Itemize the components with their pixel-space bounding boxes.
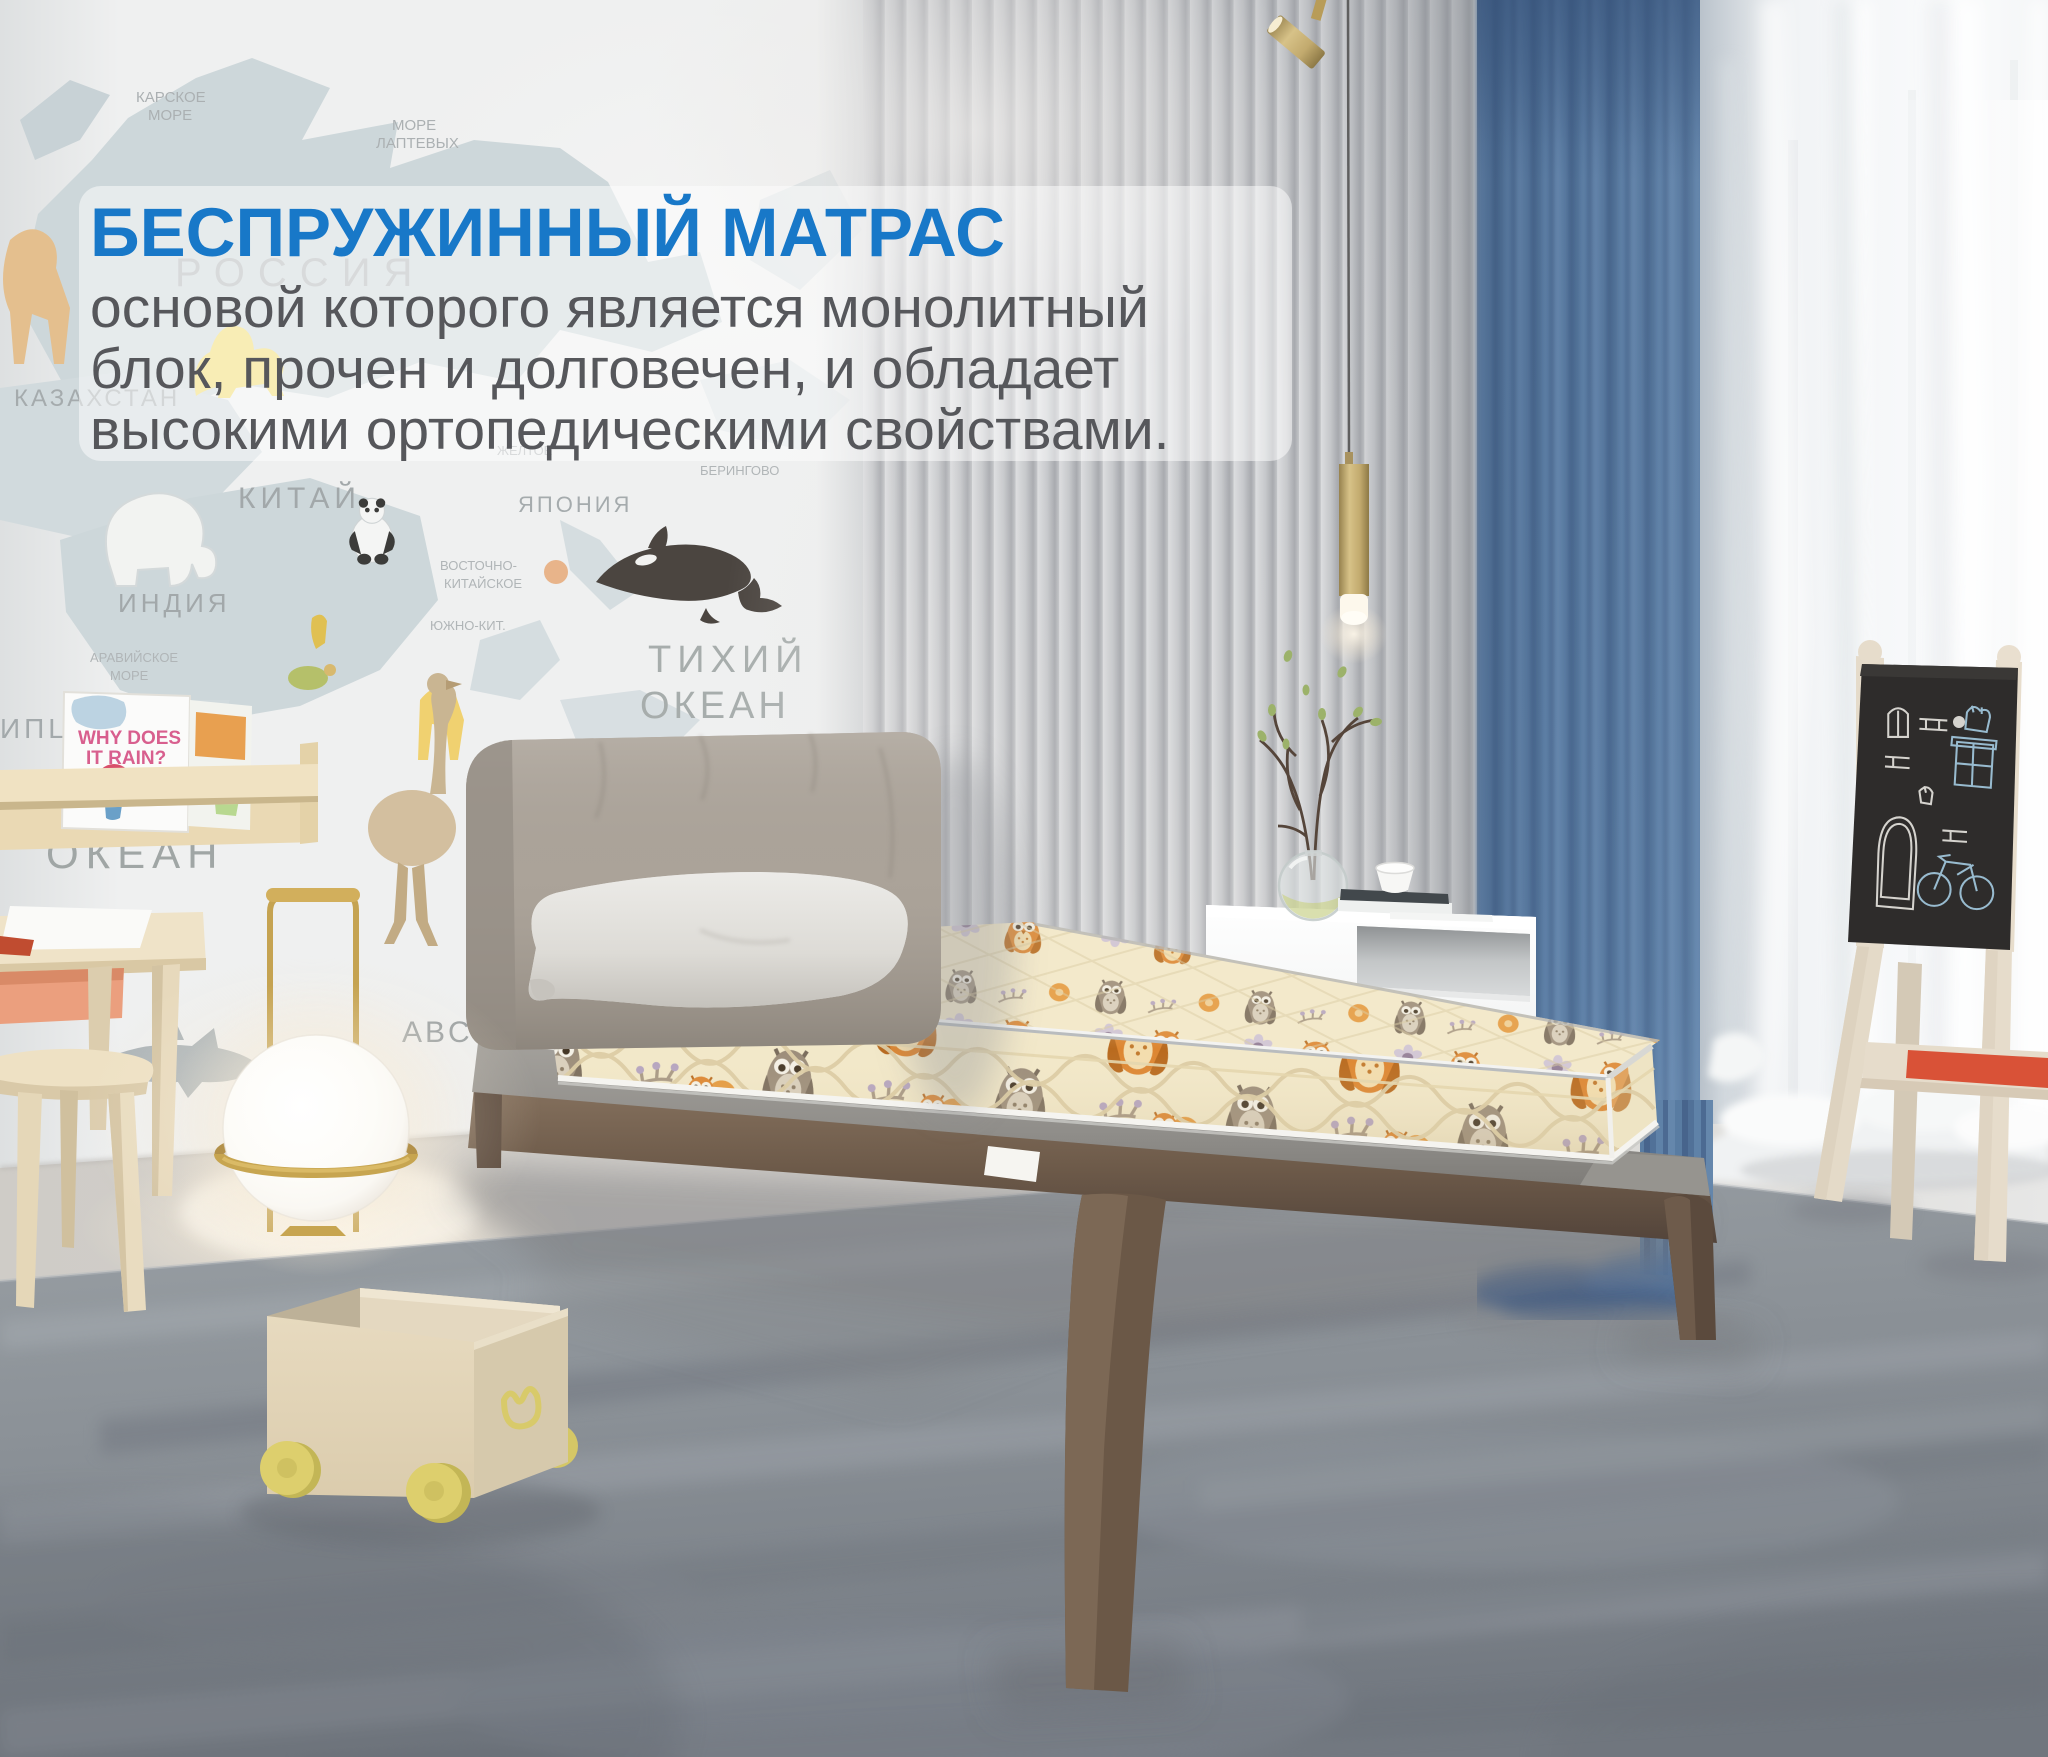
svg-text:ИПЦ: ИПЦ xyxy=(0,713,73,744)
svg-text:ЮЖНО-КИТ.: ЮЖНО-КИТ. xyxy=(430,618,506,633)
svg-text:WHY DOES: WHY DOES xyxy=(78,728,181,749)
svg-text:АРАВИЙСКОЕ: АРАВИЙСКОЕ xyxy=(90,650,178,665)
svg-text:ЯПОНИЯ: ЯПОНИЯ xyxy=(518,492,632,517)
svg-text:ЛАПТЕВЫХ: ЛАПТЕВЫХ xyxy=(376,135,459,152)
svg-text:МОРЕ: МОРЕ xyxy=(148,107,192,124)
svg-text:МОРЕ: МОРЕ xyxy=(110,668,149,683)
svg-text:КИТАЙ: КИТАЙ xyxy=(238,481,361,515)
svg-text:МОРЕ: МОРЕ xyxy=(392,117,436,134)
svg-text:IT RAIN?: IT RAIN? xyxy=(86,748,166,769)
svg-text:КАРСКОЕ: КАРСКОЕ xyxy=(136,89,206,106)
svg-text:ВОСТОЧНО-: ВОСТОЧНО- xyxy=(440,558,517,573)
svg-text:ИНДИЯ: ИНДИЯ xyxy=(118,588,231,618)
svg-text:КИТАЙСКОЕ: КИТАЙСКОЕ xyxy=(444,576,522,591)
